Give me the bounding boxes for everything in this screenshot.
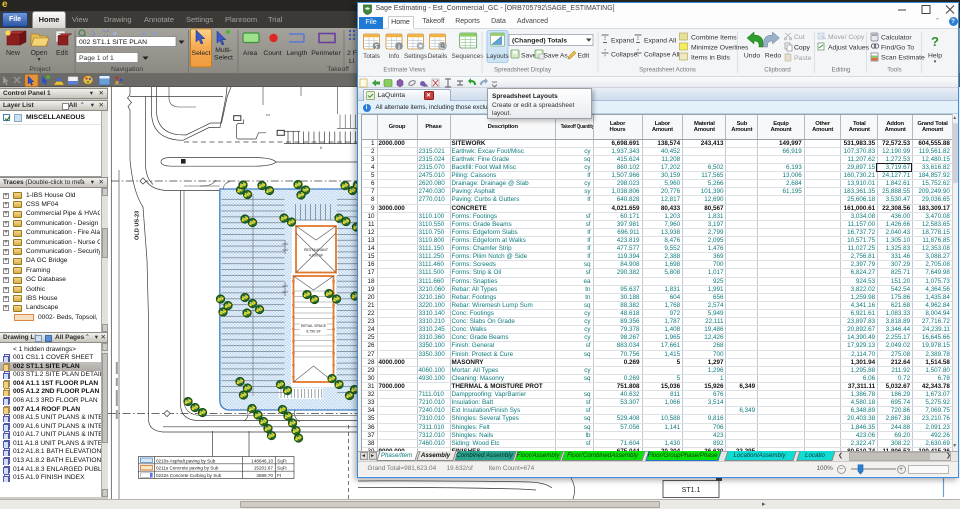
svg-text:Layouts: Layouts xyxy=(486,53,508,60)
svg-text:0211s Concrete paving by Sub: 0211s Concrete paving by Sub xyxy=(156,466,219,471)
svg-text:Redo: Redo xyxy=(764,52,780,59)
svg-text:0222s Concrete Curbing by Sub: 0222s Concrete Curbing by Sub xyxy=(156,473,222,478)
svg-text:Copy: Copy xyxy=(794,44,810,51)
svg-text:Settings: Settings xyxy=(403,53,426,60)
svg-text:4,000 SF: 4,000 SF xyxy=(309,254,324,258)
svg-text:Undo: Undo xyxy=(743,52,759,59)
svg-text:Count: Count xyxy=(263,50,281,57)
svg-text:Save: Save xyxy=(521,52,537,59)
svg-text:i: i xyxy=(398,43,400,50)
svg-text:Perimeter: Perimeter xyxy=(311,50,341,57)
svg-text:Clipboard: Clipboard xyxy=(764,66,791,73)
svg-text:•••: ••• xyxy=(266,112,271,117)
svg-text:Spreadsheet Actions: Spreadsheet Actions xyxy=(639,66,696,73)
svg-text:OLD US-23: OLD US-23 xyxy=(135,211,141,240)
svg-text:∑: ∑ xyxy=(374,44,378,50)
svg-text:▾: ▾ xyxy=(933,59,936,65)
svg-text:Details: Details xyxy=(427,53,447,60)
svg-text:6: 6 xyxy=(320,146,322,150)
svg-text:Sequences: Sequences xyxy=(451,53,483,60)
svg-text:?: ? xyxy=(931,34,939,49)
svg-text:Editing: Editing xyxy=(831,66,850,73)
svg-text:2 F: 2 F xyxy=(347,50,357,57)
svg-text:0210s Asphalt paving by Sub: 0210s Asphalt paving by Sub xyxy=(156,458,216,463)
svg-text:ST1.1: ST1.1 xyxy=(682,487,701,494)
svg-text:Expand: Expand xyxy=(611,37,634,44)
svg-text:Paste: Paste xyxy=(794,55,812,62)
svg-text:Li: Li xyxy=(349,58,355,65)
svg-text:Tools: Tools xyxy=(887,66,901,73)
svg-text:Estimate Views: Estimate Views xyxy=(383,66,425,73)
svg-text:15201.67: 15201.67 xyxy=(254,466,274,471)
svg-text:Items in Bids: Items in Bids xyxy=(691,54,731,61)
svg-text:148646.10: 148646.10 xyxy=(251,458,273,463)
svg-text:Minimize Overlines: Minimize Overlines xyxy=(691,44,749,51)
svg-text:Multi-: Multi- xyxy=(215,47,232,54)
svg-text:Length: Length xyxy=(287,50,308,57)
svg-text:Save As: Save As xyxy=(543,52,568,59)
svg-text:Select: Select xyxy=(214,55,233,62)
svg-text:Info: Info xyxy=(388,53,399,60)
svg-text:Scan Estimate: Scan Estimate xyxy=(881,54,925,61)
svg-text:Spreadsheet Display: Spreadsheet Display xyxy=(493,66,551,73)
svg-text:(Changed) Totals: (Changed) Totals xyxy=(512,37,567,44)
svg-text:SqFt: SqFt xyxy=(277,458,287,463)
svg-text:Combine Items: Combine Items xyxy=(691,34,737,41)
svg-text:Collapse All: Collapse All xyxy=(644,51,680,58)
svg-text:Cut: Cut xyxy=(794,34,805,41)
svg-text:Area: Area xyxy=(243,50,258,57)
svg-text:Select: Select xyxy=(192,50,211,57)
svg-text:Edit: Edit xyxy=(577,52,589,59)
svg-text:Move/ Copy: Move/ Copy xyxy=(828,34,865,41)
svg-text:Calculator: Calculator xyxy=(881,34,912,41)
svg-text:RESTAURANT: RESTAURANT xyxy=(304,248,329,252)
svg-text:Expand All: Expand All xyxy=(644,37,677,44)
svg-text:3689.70: 3689.70 xyxy=(256,473,273,478)
svg-text:Collapse: Collapse xyxy=(611,51,638,58)
svg-text:RETAIL SPACE: RETAIL SPACE xyxy=(301,324,327,328)
svg-text:9,750 SF: 9,750 SF xyxy=(306,330,321,334)
svg-text:Ft: Ft xyxy=(277,473,282,478)
svg-text:Totals: Totals xyxy=(363,53,380,60)
svg-text:Find/Go To: Find/Go To xyxy=(881,44,914,51)
svg-text:SqFt: SqFt xyxy=(277,466,287,471)
svg-text:Adjust Values: Adjust Values xyxy=(828,44,870,51)
